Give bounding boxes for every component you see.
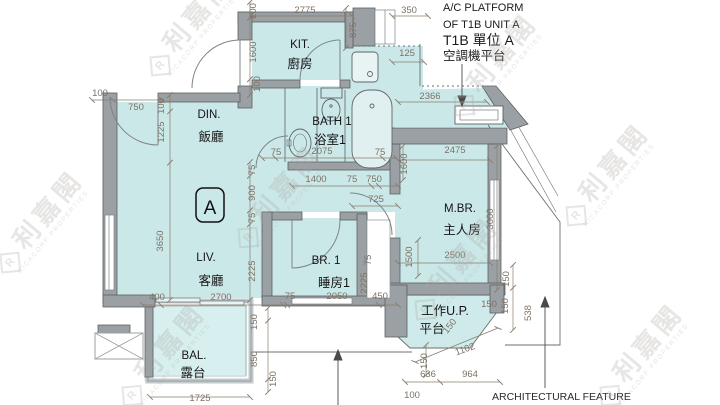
dimension-label: 125	[399, 48, 415, 59]
dining-label-en: DIN.	[198, 109, 221, 121]
dimension-label: 2050	[326, 291, 347, 302]
room-fills	[117, 22, 521, 375]
dimension-label: 850	[249, 351, 260, 367]
kitchen-sink-icon	[352, 52, 378, 82]
dimension-label: 75	[375, 147, 386, 158]
bath-label-cn: 浴室1	[314, 132, 346, 147]
dimension-label: 350	[401, 5, 417, 16]
dimension-label: 2225	[359, 272, 370, 293]
dimension-label: 100	[404, 390, 420, 401]
dimension-label: 1600	[248, 41, 259, 62]
living-window	[105, 215, 114, 290]
dimension-label: 2075	[311, 146, 332, 157]
living-label-cn: 客廳	[198, 273, 224, 288]
balcony-label-cn: 露台	[180, 365, 205, 380]
feature-arrow	[541, 297, 549, 307]
ac-unit-icon	[455, 106, 503, 124]
dimension-label: 100	[252, 76, 263, 92]
dimension-label: 1500	[404, 246, 415, 267]
dimension-label: 100	[92, 88, 108, 99]
ac-note-line1: A/C PLATFORM	[443, 2, 523, 14]
master-label-en: M.BR.	[444, 203, 476, 215]
utility-label-en: 工作U.P.	[421, 304, 469, 318]
dimension-label: 725	[368, 194, 384, 205]
unit-badge-label: A	[204, 198, 217, 219]
dimension-label: 450	[372, 291, 388, 302]
dimension-label: 2366	[419, 91, 440, 102]
dimension-label: 150	[249, 314, 260, 330]
architectural-feature-note: ARCHITECTURAL FEATURE	[492, 391, 631, 403]
dimension-label: 900	[247, 185, 258, 201]
dimension-label: 150	[500, 298, 511, 314]
dimension-label: 1225	[156, 121, 167, 142]
entrance-door-arc	[192, 40, 240, 88]
bedroom1-label-en: BR. 1	[312, 255, 341, 267]
dimension-label: 875	[348, 22, 359, 38]
dimension-label: 1600	[399, 153, 410, 174]
dining-label-cn: 飯廳	[198, 129, 224, 144]
dimension-label: 75	[363, 255, 374, 266]
ac-note-line4: 空調機平台	[443, 48, 506, 63]
ac-note-line3: T1B 單位 A	[443, 32, 514, 48]
dimension-label: 150	[481, 299, 497, 310]
dimension-label: 100	[156, 98, 167, 114]
dimension-label: 750	[128, 102, 144, 113]
dimension-label: 2500	[444, 250, 465, 261]
balcony-label-en: BAL.	[182, 350, 207, 362]
dimension-label: 75	[271, 147, 282, 158]
bottom-arrow	[334, 350, 342, 360]
dimension-label: 3650	[155, 230, 166, 251]
kitchen-label-en: KIT.	[290, 39, 310, 51]
feature-xbox	[95, 333, 143, 359]
dimension-label: 75	[247, 213, 258, 224]
dimension-label: 1400	[305, 174, 326, 185]
floorplan-drawing: 2775100160010087535012523661007501001225…	[0, 0, 720, 405]
floorplan-page: 2775100160010087535012523661007501001225…	[0, 0, 720, 405]
dimension-label: 100	[248, 3, 259, 19]
bathtub-icon	[352, 90, 392, 168]
ac-platform-note: A/C PLATFORM OF T1B UNIT A T1B 單位 A 空調機平…	[443, 2, 523, 63]
dimension-label: 2225	[247, 260, 258, 281]
bath-label-en: BATH 1	[312, 116, 351, 128]
dimension-label: 75	[285, 291, 296, 302]
master-label-cn: 主人房	[443, 222, 481, 237]
dimension-label: 3000	[485, 208, 496, 229]
dimension-label: 2775	[294, 5, 315, 16]
living-label-en: LIV.	[196, 252, 215, 264]
bedroom1-label-cn: 睡房1	[318, 275, 350, 290]
dimension-label: 538	[523, 305, 534, 321]
dimension-label: 2700	[210, 292, 231, 303]
dimension-label: 150	[501, 271, 512, 287]
dimension-label: 636	[420, 369, 436, 380]
dimension-label: 750	[366, 174, 382, 185]
dimension-label: 150	[419, 353, 430, 369]
dimension-label: 150	[268, 371, 279, 387]
dimension-label: 1725	[189, 393, 210, 404]
dimension-label: 964	[462, 369, 478, 380]
dimension-label: 2475	[444, 145, 465, 156]
dimension-label: 75	[347, 174, 358, 185]
dimension-label: 75	[247, 165, 258, 176]
ac-note-line2: OF T1B UNIT A	[443, 19, 520, 31]
utility-label-cn: 平台	[419, 321, 444, 336]
dimension-label: 400	[149, 292, 165, 303]
kitchen-label-cn: 廚房	[287, 56, 312, 71]
